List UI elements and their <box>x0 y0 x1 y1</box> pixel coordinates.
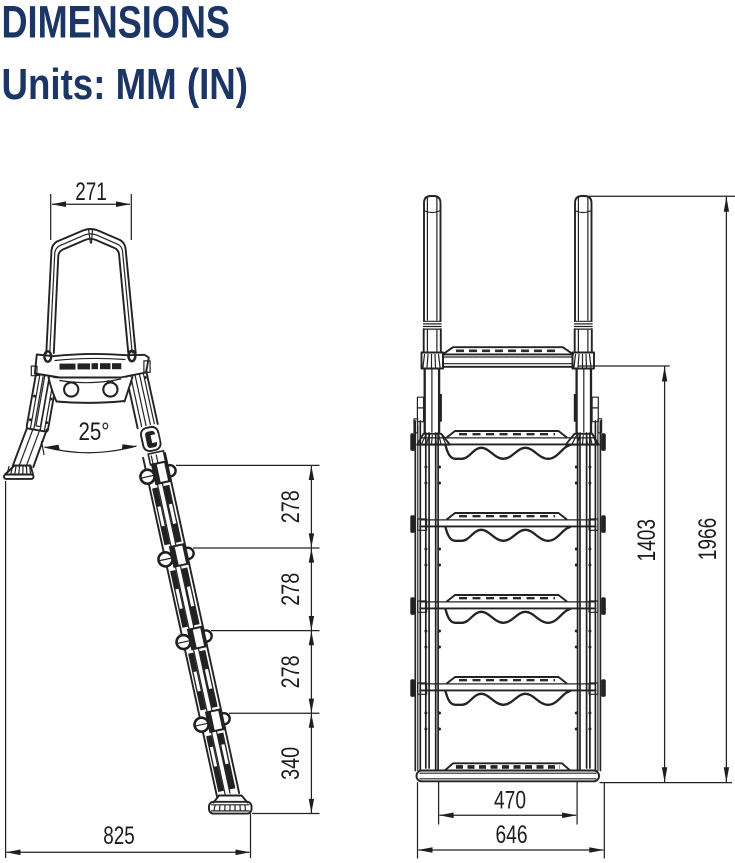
svg-text:278: 278 <box>277 490 305 523</box>
svg-text:470: 470 <box>494 787 526 815</box>
svg-text:1403: 1403 <box>633 519 661 562</box>
svg-text:825: 825 <box>103 822 135 850</box>
svg-text:271: 271 <box>75 178 107 206</box>
svg-text:Units: MM (IN): Units: MM (IN) <box>2 60 249 109</box>
svg-text:25°: 25° <box>79 418 110 446</box>
svg-text:340: 340 <box>277 747 305 780</box>
svg-text:1966: 1966 <box>694 518 722 561</box>
svg-text:278: 278 <box>277 655 305 688</box>
svg-text:278: 278 <box>277 573 305 606</box>
svg-text:646: 646 <box>496 821 528 849</box>
svg-text:DIMENSIONS: DIMENSIONS <box>2 0 231 48</box>
